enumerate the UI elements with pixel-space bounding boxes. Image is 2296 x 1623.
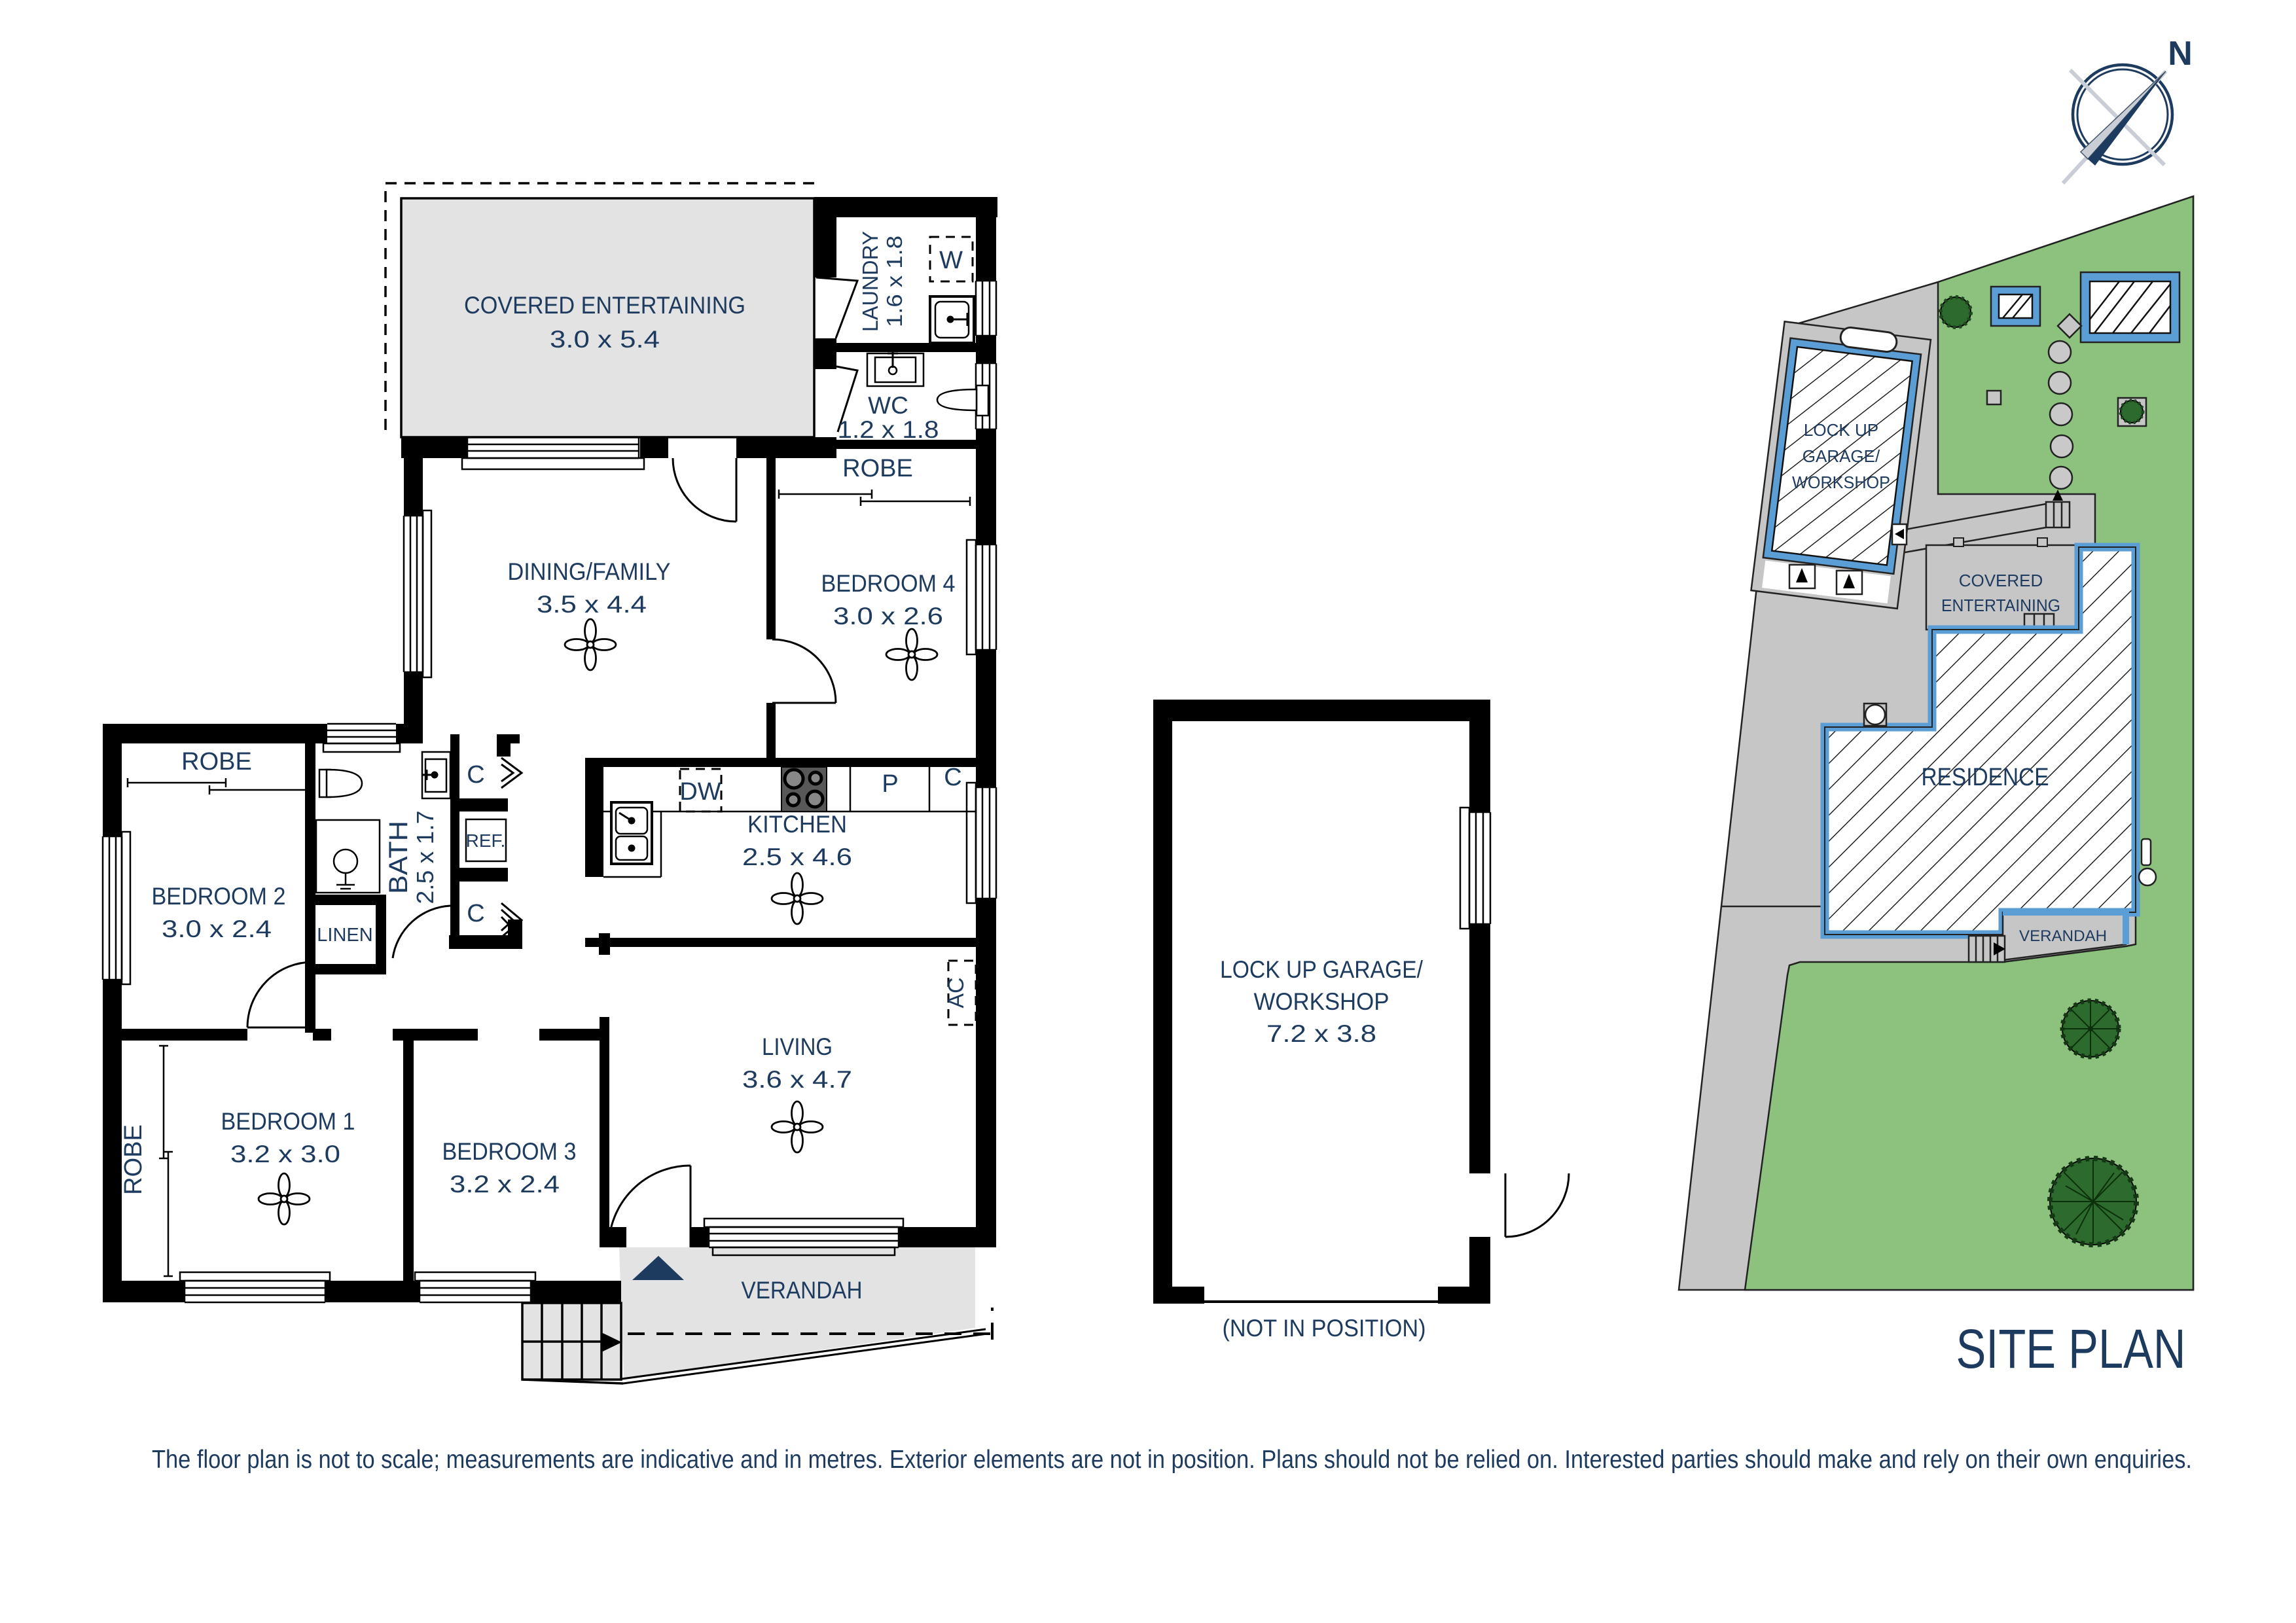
svg-text:3.2 x 3.0: 3.2 x 3.0 [230,1141,340,1168]
svg-text:LOCK UP: LOCK UP [1804,420,1878,440]
svg-text:3.2 x 2.4: 3.2 x 2.4 [450,1171,560,1198]
svg-text:COVERED ENTERTAINING: COVERED ENTERTAINING [464,292,745,319]
svg-text:ROBE: ROBE [181,748,252,776]
svg-text:C: C [467,900,484,927]
svg-text:3.5 x 4.4: 3.5 x 4.4 [537,591,647,618]
svg-text:LOCK UP GARAGE/: LOCK UP GARAGE/ [1220,956,1424,983]
svg-text:The floor plan is not to scale: The floor plan is not to scale; measurem… [152,1446,2192,1474]
svg-text:WORKSHOP: WORKSHOP [1254,988,1390,1015]
svg-text:C: C [944,764,961,791]
svg-text:LAUNDRY: LAUNDRY [858,231,882,332]
svg-text:1.2 x 1.8: 1.2 x 1.8 [838,416,939,443]
svg-text:WORKSHOP: WORKSHOP [1792,473,1890,492]
svg-text:KITCHEN: KITCHEN [747,811,847,838]
svg-text:W: W [939,247,963,274]
svg-text:N: N [2168,35,2193,73]
svg-text:1.6 x 1.8: 1.6 x 1.8 [882,236,906,327]
svg-text:GARAGE/: GARAGE/ [1803,446,1880,466]
svg-text:3.0 x 5.4: 3.0 x 5.4 [550,326,660,353]
svg-text:ENTERTAINING: ENTERTAINING [1941,596,2060,615]
svg-text:ROBE: ROBE [120,1124,147,1195]
svg-text:C: C [467,761,484,789]
svg-text:2.5 x 1.7: 2.5 x 1.7 [412,811,439,904]
svg-text:BEDROOM 1: BEDROOM 1 [221,1108,355,1135]
svg-text:VERANDAH: VERANDAH [2019,927,2107,945]
svg-text:DW: DW [679,778,721,806]
svg-text:2.5 x 4.6: 2.5 x 4.6 [742,844,852,870]
svg-text:REF.: REF. [466,830,506,851]
svg-text:3.0 x 2.6: 3.0 x 2.6 [833,603,943,630]
svg-text:AC: AC [944,977,969,1008]
svg-text:BEDROOM 4: BEDROOM 4 [821,570,956,597]
svg-text:3.6 x 4.7: 3.6 x 4.7 [742,1066,852,1093]
svg-text:LIVING: LIVING [762,1033,833,1060]
svg-text:WC: WC [868,392,908,419]
svg-text:7.2 x 3.8: 7.2 x 3.8 [1266,1020,1376,1047]
svg-text:SITE PLAN: SITE PLAN [1956,1318,2186,1380]
svg-text:P: P [882,770,898,798]
svg-text:DINING/FAMILY: DINING/FAMILY [508,558,671,585]
svg-text:BATH: BATH [384,821,413,894]
svg-text:(NOT IN POSITION): (NOT IN POSITION) [1223,1315,1426,1342]
svg-text:RESIDENCE: RESIDENCE [1922,764,2049,791]
svg-text:ROBE: ROBE [842,455,913,482]
svg-text:COVERED: COVERED [1959,571,2043,590]
svg-text:3.0 x 2.4: 3.0 x 2.4 [162,916,272,942]
svg-text:BEDROOM 2: BEDROOM 2 [152,883,286,910]
svg-text:LINEN: LINEN [317,925,372,946]
svg-text:BEDROOM 3: BEDROOM 3 [442,1138,577,1165]
svg-text:VERANDAH: VERANDAH [742,1277,863,1304]
